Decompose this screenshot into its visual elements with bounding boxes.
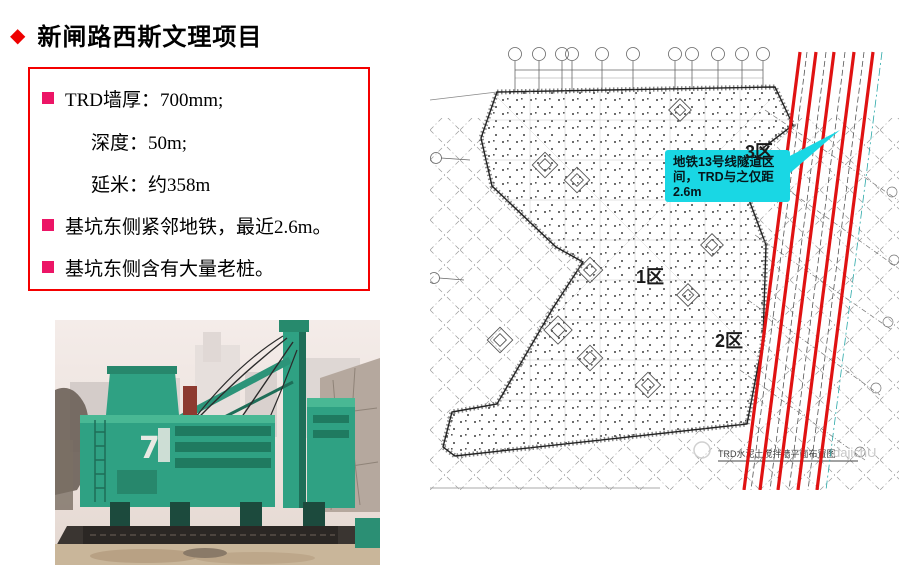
slide: ◆ 新闸路西斯文理项目 TRD墙厚：700mm; 深度：50m; 延米：约358…: [0, 0, 899, 568]
info-text: TRD墙厚：700mm;: [65, 85, 223, 112]
callout-line2: 间，TRD与之仅距: [673, 169, 774, 184]
site-plan-canvas: TRD水泥土搅拌墙平面布置图 dajichU: [430, 40, 899, 490]
machine-marking: 7: [139, 431, 160, 466]
callout-line3: 2.6m: [673, 185, 702, 199]
info-row-depth: 深度：50m;: [42, 128, 187, 154]
square-bullet-icon: [42, 261, 54, 273]
info-row-length: 延米：约358m: [42, 170, 210, 196]
info-text: 延米：约358m: [91, 170, 210, 197]
svg-text:TRD水泥土搅拌墙平面布置图: TRD水泥土搅拌墙平面布置图: [718, 448, 836, 459]
machine-photo-canvas: 7: [55, 320, 380, 565]
info-box: TRD墙厚：700mm; 深度：50m; 延米：约358m 基坑东侧紧邻地铁，最…: [28, 67, 370, 291]
site-plan: TRD水泥土搅拌墙平面布置图 dajichU: [430, 40, 899, 490]
diamond-bullet-icon: ◆: [10, 25, 25, 45]
page-title: 新闸路西斯文理项目: [37, 17, 262, 52]
zone-label-1: 1区: [636, 267, 664, 287]
watermark: dajichU: [833, 445, 876, 460]
info-text: 基坑东侧含有大量老桩。: [65, 254, 274, 281]
indent-spacer: [42, 135, 80, 147]
indent-spacer: [42, 177, 80, 189]
zone-label-2: 2区: [715, 331, 743, 351]
zone-label-3: 3区: [745, 142, 773, 162]
info-row-old-piles: 基坑东侧含有大量老桩。: [42, 254, 274, 280]
info-row-metro: 基坑东侧紧邻地铁，最近2.6m。: [42, 212, 332, 238]
info-text: 基坑东侧紧邻地铁，最近2.6m。: [65, 212, 332, 239]
page-title-row: ◆ 新闸路西斯文理项目: [10, 17, 262, 52]
info-text: 深度：50m;: [91, 128, 187, 155]
info-row-trd-wall: TRD墙厚：700mm;: [42, 85, 223, 111]
square-bullet-icon: [42, 92, 54, 104]
square-bullet-icon: [42, 219, 54, 231]
machine-photo: 7: [55, 320, 380, 565]
